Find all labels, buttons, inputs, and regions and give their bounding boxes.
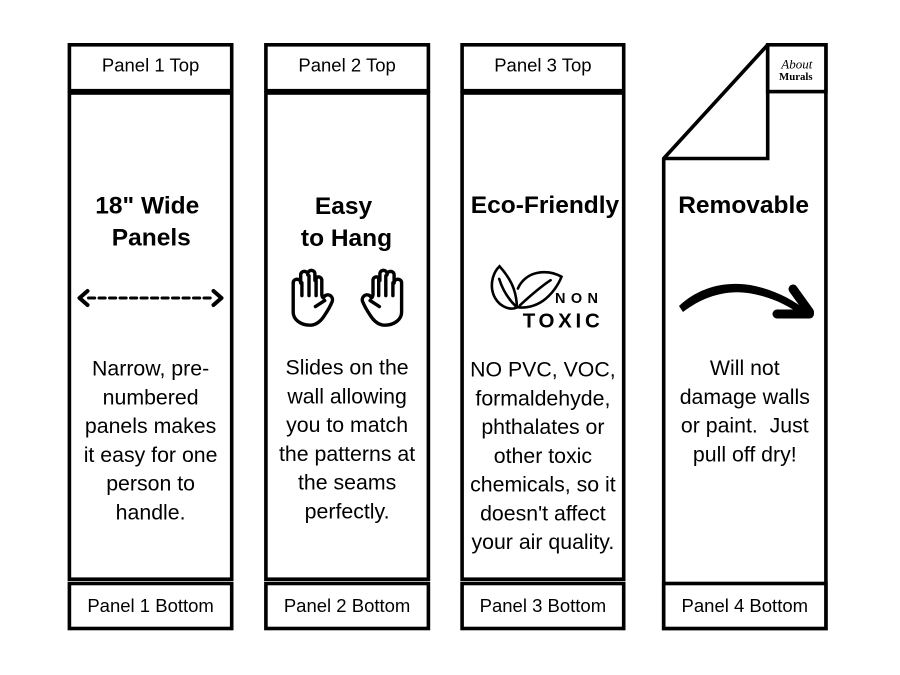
svg-text:Easy: Easy [315,193,373,220]
svg-text:NO PVC, VOC,: NO PVC, VOC, [470,358,616,382]
svg-text:Panel 4 Bottom: Panel 4 Bottom [682,595,809,616]
svg-text:phthalates or: phthalates or [481,415,604,439]
svg-text:handle.: handle. [116,500,186,524]
svg-text:Narrow, pre-: Narrow, pre- [92,357,209,381]
svg-text:Panel 1 Top: Panel 1 Top [102,55,199,76]
svg-text:18" Wide: 18" Wide [95,192,199,219]
svg-text:Removable: Removable [678,192,809,219]
svg-text:Slides on the: Slides on the [286,356,409,380]
svg-text:perfectly.: perfectly. [305,499,390,523]
svg-text:panels makes: panels makes [85,414,216,438]
svg-text:Panel 3 Bottom: Panel 3 Bottom [480,595,607,616]
svg-text:Eco-Friendly: Eco-Friendly [471,192,620,219]
svg-text:wall allowing: wall allowing [286,384,407,408]
svg-text:you to match: you to match [286,413,408,437]
svg-text:it easy for one: it easy for one [84,443,218,467]
svg-text:Panels: Panels [112,224,191,251]
svg-text:damage walls: damage walls [680,385,810,409]
svg-text:the patterns at: the patterns at [279,442,415,466]
svg-text:Panel 1 Bottom: Panel 1 Bottom [87,595,214,616]
svg-text:chemicals, so it: chemicals, so it [470,473,616,497]
svg-text:the seams: the seams [298,471,396,495]
svg-text:formaldehyde,: formaldehyde, [475,386,610,410]
svg-text:About: About [780,57,812,72]
svg-text:doesn't affect: doesn't affect [480,501,606,525]
svg-text:Will not: Will not [710,356,780,380]
svg-text:to Hang: to Hang [301,225,392,252]
svg-text:Panel 2 Top: Panel 2 Top [298,55,395,76]
svg-text:or paint. Just: or paint. Just [681,414,809,438]
svg-text:numbered: numbered [103,385,199,409]
svg-text:pull off dry!: pull off dry! [693,442,797,466]
svg-text:person to: person to [106,472,195,496]
svg-text:TOXIC: TOXIC [523,309,604,332]
svg-text:your air quality.: your air quality. [471,530,614,554]
svg-text:NON: NON [555,291,603,307]
svg-text:Murals: Murals [779,71,813,83]
svg-text:Panel 2 Bottom: Panel 2 Bottom [284,595,411,616]
svg-text:other toxic: other toxic [494,444,593,468]
svg-text:Panel 3 Top: Panel 3 Top [494,55,591,76]
